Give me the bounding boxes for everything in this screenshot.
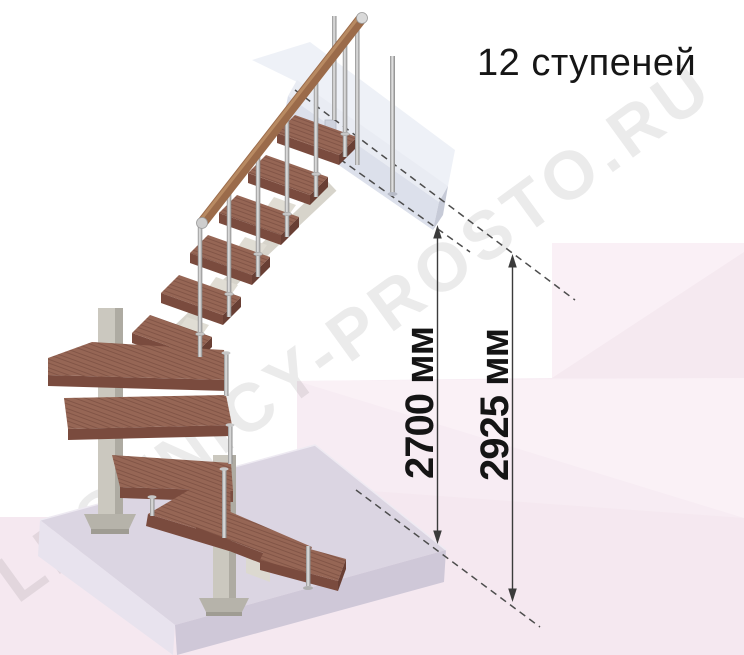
baluster bbox=[227, 189, 232, 317]
winder-post bbox=[222, 468, 227, 538]
baluster bbox=[343, 40, 348, 157]
winder-post bbox=[150, 496, 155, 516]
baluster-disc bbox=[148, 495, 157, 499]
landing-post bbox=[332, 16, 337, 120]
baluster bbox=[256, 151, 260, 277]
winder-post bbox=[228, 424, 233, 464]
step-count-title: 12 ступеней bbox=[477, 42, 696, 85]
column-base-plate-edge bbox=[91, 529, 129, 534]
staircase-illustration: LESTNICY-PROSTO.RU bbox=[0, 0, 744, 655]
baluster-disc bbox=[312, 172, 321, 176]
baluster bbox=[314, 77, 319, 197]
column-base-plate bbox=[84, 514, 136, 529]
landing-newel-post bbox=[390, 56, 395, 194]
baluster bbox=[198, 226, 203, 357]
column-base-plate-edge bbox=[206, 612, 242, 616]
baluster-disc bbox=[196, 332, 205, 336]
winder-post bbox=[224, 352, 229, 396]
handrail-top-cap bbox=[357, 13, 368, 24]
dimension-label-2925: 2925 мм bbox=[473, 329, 517, 481]
baluster-disc bbox=[254, 252, 263, 256]
baluster-disc bbox=[283, 212, 292, 216]
baluster bbox=[285, 114, 290, 237]
staircase-diagram: LESTNICY-PROSTO.RU bbox=[0, 0, 744, 655]
baluster-disc bbox=[220, 467, 229, 471]
handrail-bottom-cap bbox=[197, 218, 208, 229]
baluster-disc bbox=[225, 292, 234, 296]
baluster-disc bbox=[341, 132, 350, 136]
post-base bbox=[388, 192, 398, 196]
baluster-disc bbox=[222, 351, 231, 355]
column-base-plate bbox=[199, 598, 249, 612]
bottom-step-leg bbox=[306, 546, 311, 586]
dimension-label-2700: 2700 мм bbox=[398, 327, 442, 479]
baluster-disc bbox=[226, 423, 235, 427]
tread-grain bbox=[64, 395, 232, 429]
landing-post bbox=[355, 30, 360, 165]
leg-foot bbox=[303, 586, 313, 590]
